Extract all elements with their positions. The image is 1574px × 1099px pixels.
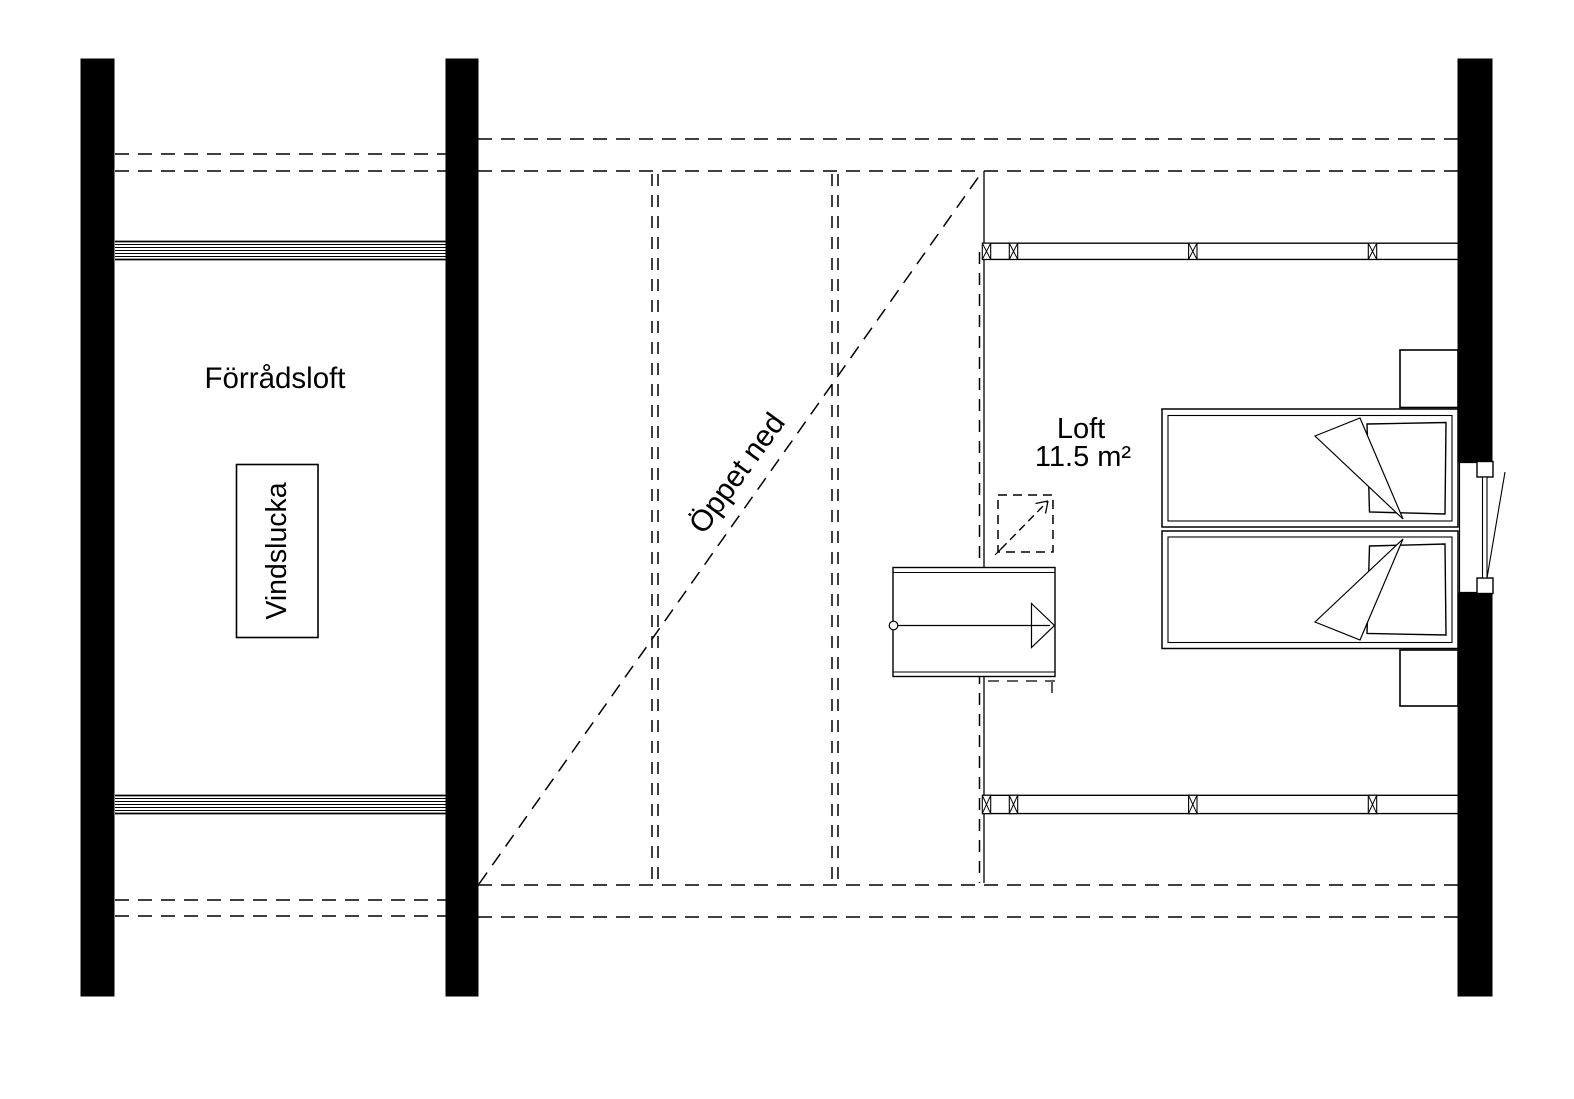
window-frame-block — [1477, 578, 1493, 594]
window-pane — [1483, 477, 1488, 578]
window-frame-block — [1477, 462, 1493, 478]
void-diagonal-dashed — [479, 172, 982, 884]
loft-railing-bottom — [982, 795, 1458, 813]
nightstand-top — [1400, 350, 1458, 408]
wall-middle — [446, 59, 478, 996]
wall-right-lower — [1458, 593, 1492, 996]
wall-left — [81, 59, 114, 996]
bed-2 — [1162, 531, 1458, 649]
stair-arrow-origin — [889, 621, 898, 630]
hatch-strip-top — [115, 242, 446, 260]
roofline-dashed-bottom — [115, 885, 1458, 917]
railing-post-x — [982, 795, 1376, 813]
roofline-dashed-top — [115, 139, 1458, 171]
open-below-label: Öppet ned — [683, 407, 792, 540]
bed-1 — [1162, 409, 1458, 527]
floor-plan-svg: Förrådsloft Vindslucka Öppet ned Loft 11… — [0, 0, 1574, 1099]
hatch-strip-bottom — [115, 796, 446, 814]
stair-hidden-edge-dashed — [988, 681, 1055, 695]
stair-ladder — [889, 568, 1055, 696]
loft-railing-top — [982, 243, 1458, 259]
chimney-dashed — [995, 495, 1053, 555]
attic-hatch-label: Vindslucka — [261, 482, 293, 619]
storage-loft-label: Förrådsloft — [205, 362, 346, 395]
window-swing-line — [1487, 472, 1505, 578]
wall-right-upper — [1458, 59, 1492, 462]
loft-area-label: 11.5 m² — [1035, 441, 1132, 473]
floor-plan-page: Förrådsloft Vindslucka Öppet ned Loft 11… — [0, 0, 1574, 1099]
nightstand-bottom — [1400, 650, 1458, 706]
railing-post-x — [982, 243, 1376, 259]
plan-linework — [81, 59, 1505, 996]
window — [1459, 462, 1505, 594]
